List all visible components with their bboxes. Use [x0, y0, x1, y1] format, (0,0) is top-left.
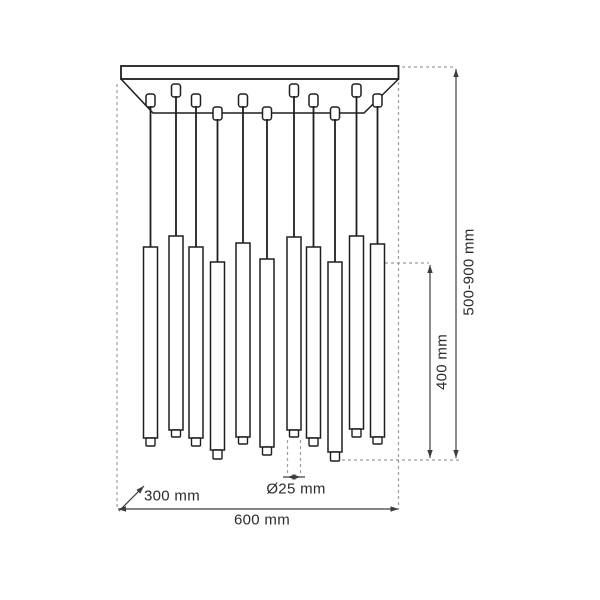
tube-length-dim-arrowhead: [427, 265, 432, 273]
pendant-tube-tip: [239, 437, 248, 444]
pendant-tube: [307, 247, 321, 438]
cord-connector: [192, 94, 201, 107]
pendant-tube: [169, 236, 183, 430]
tube-length-dim-arrowhead: [427, 450, 432, 458]
tube-length-label: 400 mm: [434, 334, 451, 390]
pendant-tube-tip: [213, 450, 222, 459]
cord-connector: [331, 107, 340, 120]
overall-width-label: 600 mm: [234, 512, 290, 529]
overall-width-dim-arrowhead: [391, 506, 399, 511]
tube-diameter-dim-arrowhead: [293, 474, 301, 479]
cord-connector: [239, 94, 248, 107]
canopy-plate: [121, 66, 399, 79]
cord-connector: [213, 107, 222, 120]
canopy-depth-label: 300 mm: [144, 488, 200, 505]
pendant-tube-tip: [331, 452, 340, 461]
pendant-tube: [189, 247, 203, 438]
product-dimension-drawing: 500-900 mm 400 mm Ø25 mm 300 mm 600 mm: [0, 0, 600, 600]
pendant-tube-tip: [290, 430, 299, 437]
pendant-tube: [287, 237, 301, 430]
pendant-tube: [211, 262, 225, 450]
cord-connector: [309, 94, 318, 107]
cord-connector: [373, 94, 382, 107]
pendant-tube-tip: [146, 438, 155, 446]
overall-height-dim-arrowhead: [453, 450, 458, 458]
pendant-tube: [328, 262, 342, 452]
drawing-canvas: 500-900 mm 400 mm Ø25 mm 300 mm 600 mm: [0, 0, 600, 600]
cord-connector: [172, 84, 181, 97]
pendant-tube-tip: [172, 430, 181, 437]
pendant-tube-tip: [309, 438, 318, 446]
overall-height-label: 500-900 mm: [461, 228, 478, 315]
pendant-tube: [371, 244, 385, 437]
pendant-tube: [350, 236, 364, 429]
overall-height-dim-arrowhead: [453, 69, 458, 77]
cord-connector: [146, 94, 155, 107]
pendant-tube-tip: [192, 438, 201, 446]
pendant-tube: [236, 243, 250, 437]
cord-connector: [263, 107, 272, 120]
pendant-lamp-layer: [121, 66, 399, 461]
pendant-tube-tip: [373, 437, 382, 444]
pendant-tube-tip: [352, 429, 361, 437]
pendant-tube-tip: [263, 447, 272, 455]
cord-connector: [290, 84, 299, 97]
pendant-tube: [144, 247, 158, 438]
pendant-tube: [260, 259, 274, 447]
cord-connector: [352, 84, 361, 97]
tube-diameter-label: Ø25 mm: [266, 481, 325, 498]
